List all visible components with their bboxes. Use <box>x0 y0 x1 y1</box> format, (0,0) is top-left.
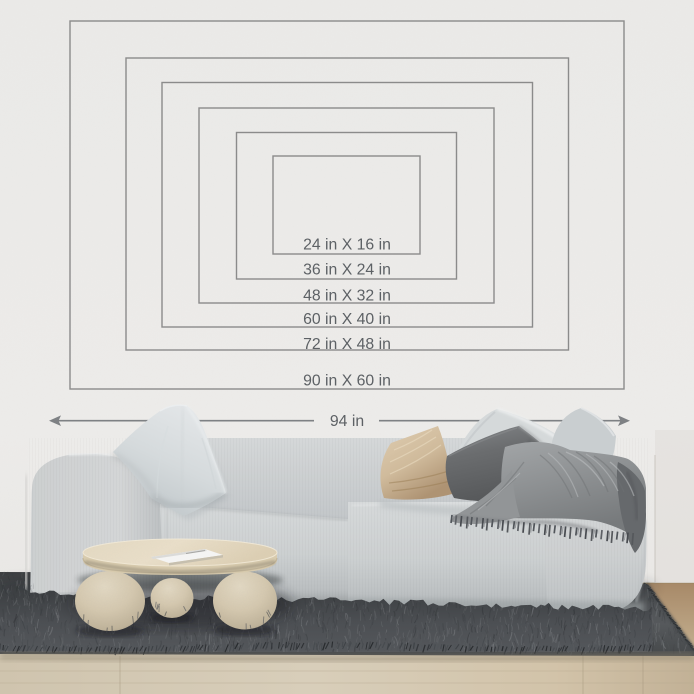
svg-text:48 in X 32 in: 48 in X 32 in <box>303 288 391 305</box>
svg-text:94 in: 94 in <box>330 413 364 430</box>
svg-text:90 in X 60 in: 90 in X 60 in <box>303 373 391 390</box>
svg-text:36 in X 24 in: 36 in X 24 in <box>303 262 391 279</box>
svg-text:24 in X 16 in: 24 in X 16 in <box>303 237 391 254</box>
svg-text:60 in X 40 in: 60 in X 40 in <box>303 311 391 328</box>
svg-text:72 in X 48 in: 72 in X 48 in <box>303 336 391 353</box>
